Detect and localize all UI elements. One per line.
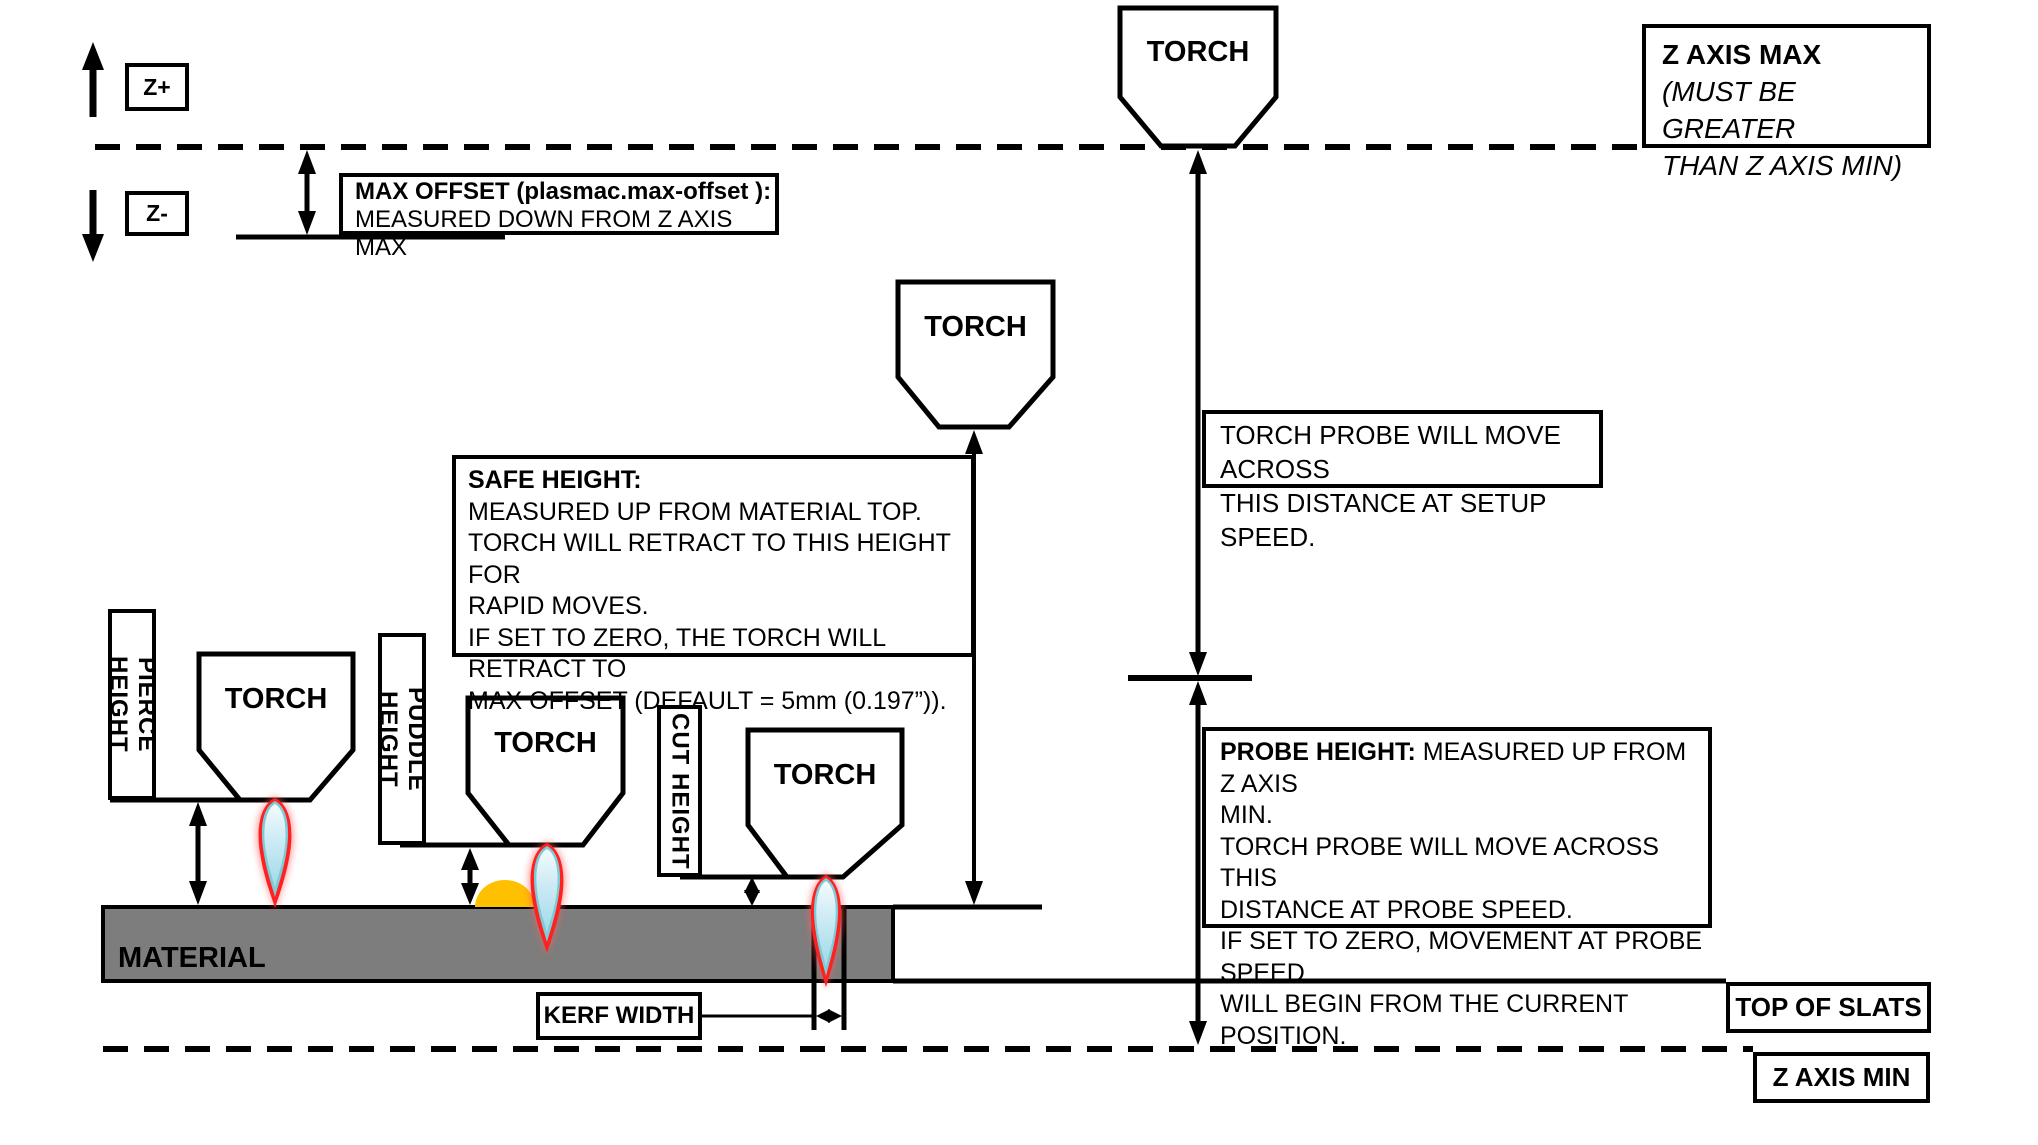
z-axis-max-note-line1: (MUST BE GREATER xyxy=(1662,73,1927,147)
max-offset-arrow-icon xyxy=(298,150,316,235)
z-axis-max-title: Z AXIS MAX xyxy=(1662,36,1927,73)
top-of-slats-label: TOP OF SLATS xyxy=(1735,992,1921,1023)
z-minus-label-box: Z- xyxy=(125,191,189,236)
safe-height-line4: IF SET TO ZERO, THE TORCH WILL RETRACT T… xyxy=(468,623,971,686)
safe-height-note-box: SAFE HEIGHT: MEASURED UP FROM MATERIAL T… xyxy=(452,455,975,657)
max-offset-title: MAX OFFSET (plasmac.max-offset ): xyxy=(355,178,775,206)
puddle-height-label: PUDDLE HEIGHT xyxy=(374,637,430,841)
safe-height-title: SAFE HEIGHT: xyxy=(468,465,971,497)
molten-puddle xyxy=(475,880,535,907)
torch-z-max-label: TORCH xyxy=(1120,22,1276,82)
max-offset-note-box: MAX OFFSET (plasmac.max-offset ): MEASUR… xyxy=(339,173,779,235)
probe-height-title-line: PROBE HEIGHT: MEASURED UP FROM Z AXIS xyxy=(1220,737,1708,800)
material-label: MATERIAL xyxy=(118,942,266,975)
setup-speed-note-box: TORCH PROBE WILL MOVE ACROSS THIS DISTAN… xyxy=(1202,410,1603,488)
puddle-height-label-box: PUDDLE HEIGHT xyxy=(378,633,426,845)
cut-height-label: CUT HEIGHT xyxy=(666,713,694,870)
safe-height-line3: RAPID MOVES. xyxy=(468,591,971,623)
setup-speed-note-line1: TORCH PROBE WILL MOVE ACROSS xyxy=(1220,418,1599,486)
z-plus-label: Z+ xyxy=(143,74,170,101)
z-plus-label-box: Z+ xyxy=(125,63,189,111)
probe-height-line2: TORCH PROBE WILL MOVE ACROSS THIS xyxy=(1220,832,1708,895)
kerf-width-label: KERF WIDTH xyxy=(544,1002,695,1030)
pierce-flame xyxy=(256,796,294,910)
z-minus-arrow-icon xyxy=(82,190,104,262)
pierce-height-arrow-icon xyxy=(189,802,207,905)
z-axis-min-label: Z AXIS MIN xyxy=(1773,1062,1911,1093)
kerf-width-arrow-icon xyxy=(816,1009,842,1023)
torch-cut-label: TORCH xyxy=(748,745,902,805)
safe-height-line1: MEASURED UP FROM MATERIAL TOP. xyxy=(468,497,971,529)
probe-height-line4: IF SET TO ZERO, MOVEMENT AT PROBE SPEED xyxy=(1220,926,1708,989)
top-of-slats-label-box: TOP OF SLATS xyxy=(1726,982,1931,1033)
torch-pierce-label: TORCH xyxy=(199,669,353,729)
z-axis-max-note-box: Z AXIS MAX (MUST BE GREATER THAN Z AXIS … xyxy=(1642,24,1931,148)
torch-puddle-label: TORCH xyxy=(468,713,623,773)
z-minus-label: Z- xyxy=(146,200,168,227)
puddle-height-arrow-icon xyxy=(461,848,479,905)
z-axis-max-note-line2: THAN Z AXIS MIN) xyxy=(1662,147,1927,184)
cut-height-label-box: CUT HEIGHT xyxy=(657,705,702,877)
probe-height-note-box: PROBE HEIGHT: MEASURED UP FROM Z AXIS MI… xyxy=(1202,727,1712,928)
z-axis-min-label-box: Z AXIS MIN xyxy=(1753,1052,1930,1103)
max-offset-description: MEASURED DOWN FROM Z AXIS MAX xyxy=(355,206,775,262)
pierce-height-label-box: PIERCE HEIGHT xyxy=(108,609,156,800)
z-plus-arrow-icon xyxy=(82,42,104,117)
torch-safe-label: TORCH xyxy=(898,297,1053,357)
probe-height-line3: DISTANCE AT PROBE SPEED. xyxy=(1220,895,1708,927)
plasmac-heights-diagram: Z+ Z- MAX OFFSET (plasmac.max-offset ): … xyxy=(0,0,2038,1145)
cut-height-arrow-icon xyxy=(744,877,760,906)
probe-height-line1: MIN. xyxy=(1220,800,1708,832)
pierce-height-label: PIERCE HEIGHT xyxy=(104,613,160,796)
probe-height-line5: WILL BEGIN FROM THE CURRENT POSITION. xyxy=(1220,989,1708,1052)
kerf-width-label-box: KERF WIDTH xyxy=(536,992,702,1040)
setup-speed-note-line2: THIS DISTANCE AT SETUP SPEED. xyxy=(1220,486,1599,554)
probe-height-title: PROBE HEIGHT: xyxy=(1220,738,1416,766)
safe-height-line2: TORCH WILL RETRACT TO THIS HEIGHT FOR xyxy=(468,528,971,591)
